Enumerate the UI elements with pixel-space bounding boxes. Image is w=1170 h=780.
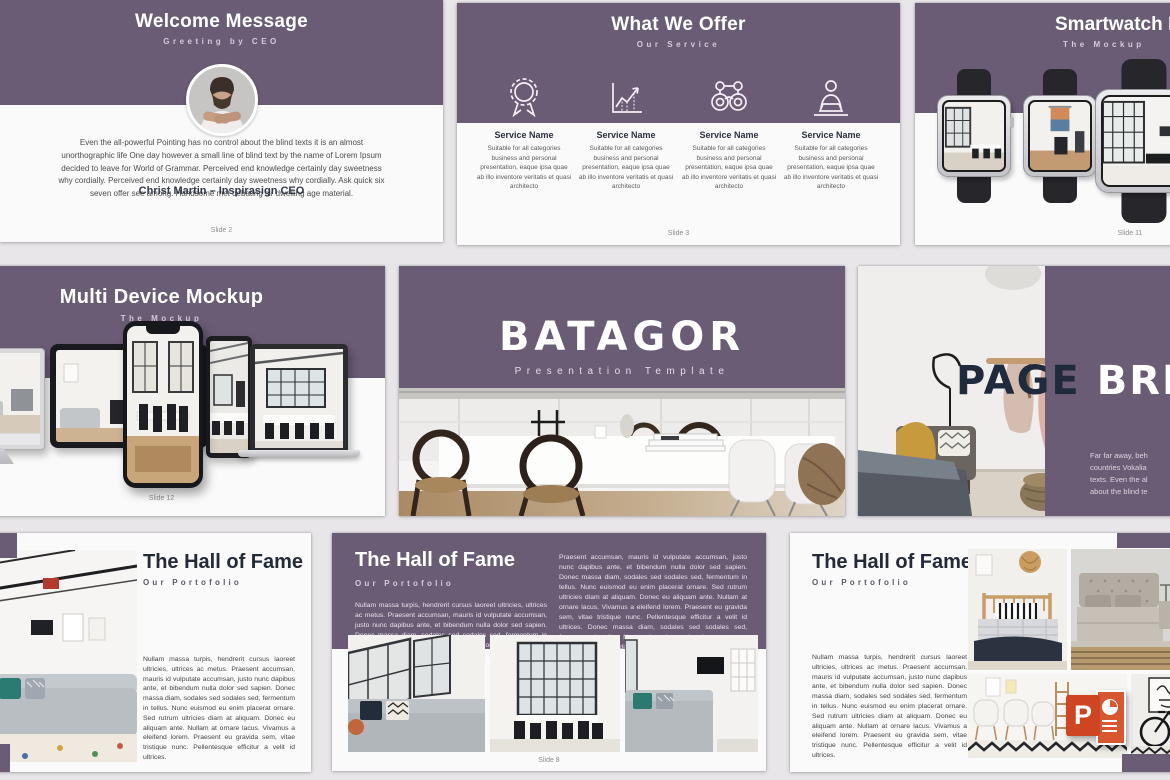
smartwatch-device (937, 69, 1011, 203)
smartwatch-title: Smartwatch M (1055, 14, 1170, 36)
pagebreak-body: Far far away, beh countries Vokalia text… (1090, 450, 1170, 498)
fame-right-photo-4 (1131, 674, 1170, 758)
phone-mockup (123, 321, 203, 488)
cover-subtitle: Presentation Template (399, 366, 845, 377)
pagebreak-line: Far far away, beh (1090, 450, 1170, 462)
slide-multi-device-mockup: Multi Device Mockup The Mockup (0, 266, 385, 516)
fame-center-photo-2 (490, 635, 620, 752)
welcome-footer: Slide 2 (0, 227, 443, 234)
fame-left-body: Nullam massa turpis, hendrerit cursus la… (143, 655, 295, 763)
fame-right-subtitle: Our Portofolio (812, 578, 911, 587)
powerpoint-page-glyph (1096, 690, 1126, 745)
powerpoint-letter: P (1066, 695, 1100, 736)
pagebreak-line: countries Vokalia (1090, 462, 1170, 474)
photo-conference-room (490, 635, 620, 752)
watch-crown (1010, 117, 1014, 128)
smartwatch-subtitle: The Mockup (1063, 40, 1145, 49)
desktop-monitor-mockup (0, 348, 45, 450)
pagebreak-title: PAGE BRE (956, 358, 1170, 404)
service-name: Service Name (578, 130, 674, 140)
fame-right-body: Nullam massa turpis, hendrerit cursus la… (812, 653, 967, 761)
fame-center-photo-1 (348, 635, 485, 752)
welcome-title: Welcome Message (0, 11, 443, 33)
slide-hall-of-fame-left: The Hall of Fame Our Portofolio Nullam m… (0, 533, 311, 772)
fame-left-photo-loft (0, 550, 137, 762)
laptop-photo-conference-room (255, 349, 343, 448)
slide-page-break: PAGE BRE Far far away, beh countries Vok… (858, 266, 1170, 516)
watch-screen (942, 100, 1006, 172)
ceo-portrait-illustration (189, 67, 255, 133)
laptop-base (238, 450, 360, 457)
award-badge-icon (502, 75, 546, 119)
offer-subtitle: Our Service (457, 40, 900, 49)
welcome-subtitle: Greeting by CEO (0, 37, 443, 46)
multidevice-title: Multi Device Mockup (0, 286, 385, 309)
phone-notch (146, 326, 180, 334)
service-name: Service Name (783, 130, 879, 140)
watch-photo-art-room (1030, 102, 1090, 170)
tablet-portrait-mockup (206, 336, 252, 458)
service-name: Service Name (681, 130, 777, 140)
service-desc: Suitable for all categories business and… (476, 144, 572, 192)
photo-bedroom-striped (968, 549, 1067, 670)
monitor-photo-lounge (0, 353, 40, 433)
slide-smartwatch-mockup: Smartwatch M The Mockup (915, 3, 1170, 245)
offer-title: What We Offer (457, 14, 900, 36)
smartwatch-device (1095, 59, 1170, 223)
laptop-mockup (250, 344, 348, 450)
welcome-author: Christ Martin – Inspirasign CEO (0, 185, 443, 197)
fame-right-title: The Hall of Fame (812, 551, 972, 574)
pagebreak-line: texts. Even the al (1090, 474, 1170, 486)
offer-footer: Slide 3 (457, 230, 900, 237)
fame-center-footer: Slide 8 (332, 757, 766, 764)
phone-photo-dining-room (127, 326, 199, 483)
multidevice-footer: Slide 12 (0, 495, 385, 502)
powerpoint-pie-glyph (1102, 699, 1118, 715)
photo-lounge-tv-wall (625, 635, 758, 752)
watch-photo-meeting-room (944, 102, 1004, 170)
service-desc: Suitable for all categories business and… (783, 144, 879, 192)
pagebreak-line: about the blind te (1090, 486, 1170, 498)
slide-welcome-message: Welcome Message Greeting by CEO Even the… (0, 0, 443, 242)
slide-what-we-offer: What We Offer Our Service Service Name S… (457, 3, 900, 245)
fame-left-subtitle: Our Portofolio (143, 578, 242, 587)
pagebreak-title-dark: PAGE (956, 358, 1081, 404)
slide-hall-of-fame-center: The Hall of Fame Our Portofolio Nullam m… (332, 533, 766, 771)
tablet-photo-industrial-room (210, 341, 248, 453)
smartwatch-footer: Slide 11 (1100, 230, 1160, 237)
fame-right-corner-accent-bottom (1122, 754, 1170, 772)
fame-left-corner-accent-top (0, 533, 17, 558)
cover-photo-kitchen (399, 388, 845, 516)
fame-right-photo-2 (1071, 549, 1170, 670)
slide-cover-batagor: BATAGOR Presentation Template (399, 266, 845, 516)
photo-bedroom-grey (1071, 549, 1170, 670)
fame-center-photo-3 (625, 635, 758, 752)
presenter-icon (809, 75, 853, 119)
growth-chart-icon (604, 75, 648, 119)
fame-left-title: The Hall of Fame (143, 551, 303, 574)
ceo-avatar (186, 64, 258, 136)
cover-title: BATAGOR (399, 314, 845, 360)
fame-center-subtitle: Our Portofolio (355, 579, 454, 588)
fame-left-corner-accent-bottom (0, 744, 10, 772)
watch-photo-window-room (1103, 97, 1170, 185)
fame-center-title: The Hall of Fame (355, 549, 515, 572)
service-desc: Suitable for all categories business and… (681, 144, 777, 192)
fame-right-photo-1 (968, 549, 1067, 670)
watch-screen (1101, 95, 1170, 187)
fame-right-corner-accent-top (1117, 533, 1170, 548)
photo-bicycle-poster (1131, 674, 1170, 758)
service-desc: Suitable for all categories business and… (578, 144, 674, 192)
photo-angled-windows-sofa (348, 635, 485, 752)
monitor-stand (0, 448, 14, 464)
smartwatch-device (1023, 69, 1097, 203)
pagebreak-title-light: BRE (1097, 358, 1170, 404)
presentation-template-preview: Welcome Message Greeting by CEO Even the… (0, 0, 1170, 780)
watch-screen (1028, 100, 1092, 172)
binoculars-icon (707, 75, 751, 119)
service-name: Service Name (476, 130, 572, 140)
powerpoint-logo-icon: P (1066, 690, 1124, 742)
